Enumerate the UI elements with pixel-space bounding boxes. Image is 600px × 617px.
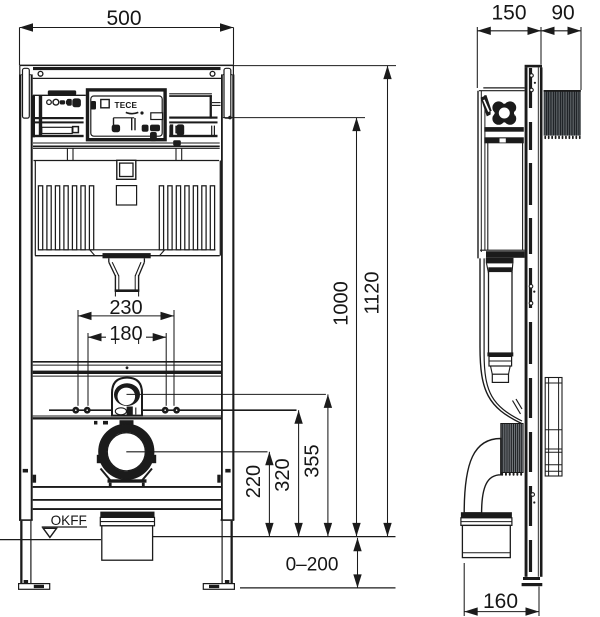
svg-text:500: 500 [106, 7, 141, 30]
svg-text:0–200: 0–200 [286, 555, 339, 576]
svg-text:OKFF: OKFF [51, 513, 87, 528]
svg-text:180: 180 [109, 323, 142, 345]
svg-text:90: 90 [551, 2, 574, 25]
svg-text:320: 320 [272, 458, 294, 491]
svg-text:1000: 1000 [330, 281, 352, 326]
svg-text:TECE: TECE [115, 101, 138, 110]
svg-text:220: 220 [243, 465, 265, 498]
svg-text:160: 160 [483, 590, 518, 613]
svg-text:355: 355 [301, 444, 323, 477]
svg-text:150: 150 [491, 2, 526, 25]
svg-text:1120: 1120 [361, 271, 383, 314]
svg-text:230: 230 [109, 297, 142, 319]
